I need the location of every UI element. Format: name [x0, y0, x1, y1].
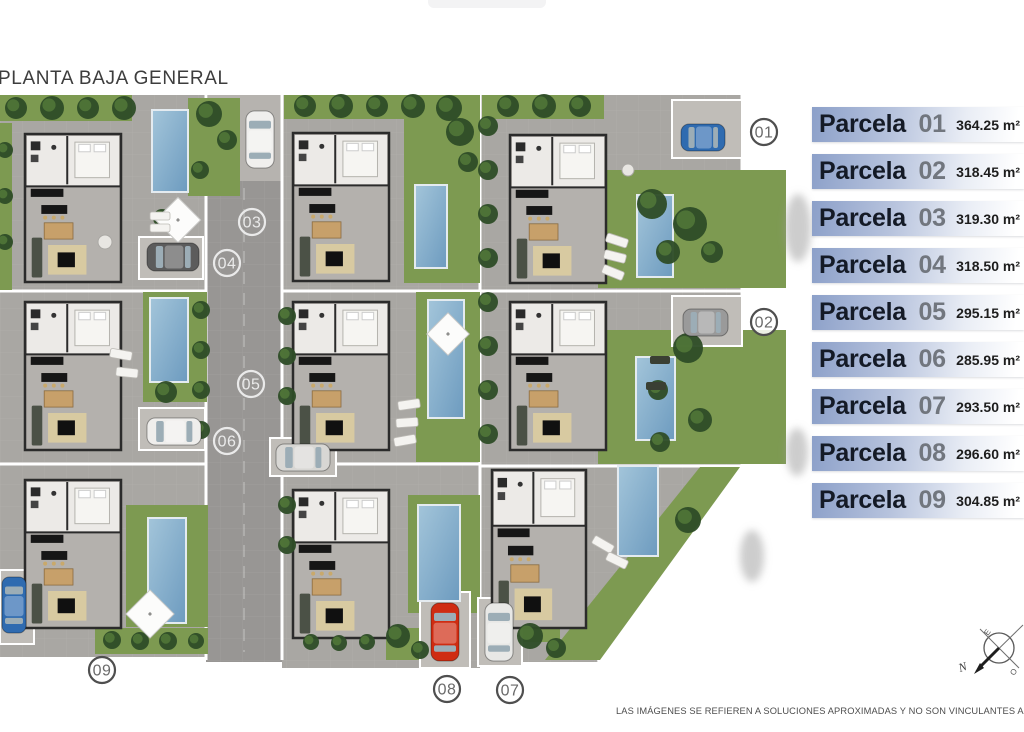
car-icon — [2, 577, 26, 633]
sofa — [32, 238, 43, 278]
sink — [536, 313, 541, 318]
parcel-number: 05 — [919, 298, 946, 326]
tree-highlight — [79, 99, 91, 111]
tree-icon — [278, 307, 296, 325]
tree-icon — [155, 381, 177, 403]
site-plan-page: 010203040506070809NEO PLANTA BAJA GENERA… — [0, 0, 1024, 732]
tree-icon — [673, 333, 703, 363]
plot-marker-label: 03 — [243, 215, 262, 232]
tree-highlight — [388, 626, 401, 639]
plot-marker-label: 02 — [755, 315, 774, 332]
car-roof — [165, 421, 184, 443]
pillow — [579, 312, 591, 319]
parcel-label: Parcela 09 — [819, 486, 946, 515]
tree-highlight — [520, 626, 534, 640]
plot-marker-02: 02 — [751, 309, 777, 335]
car-icon — [485, 603, 513, 661]
house-plan — [293, 490, 389, 638]
tree-icon — [411, 641, 429, 659]
sink — [319, 501, 324, 506]
plot-marker-01: 01 — [751, 119, 777, 145]
pillow — [79, 312, 91, 319]
stool — [60, 562, 64, 566]
tree-icon — [517, 623, 543, 649]
pillow — [79, 144, 91, 151]
tree-highlight — [676, 210, 695, 229]
coffee-table — [326, 608, 343, 623]
bath-fixture — [299, 511, 307, 518]
parcel-area: 295.15 m² — [956, 305, 1020, 321]
car-icon — [431, 603, 459, 661]
plot-marker-07: 07 — [497, 677, 523, 703]
pillow — [362, 143, 374, 150]
swimming-pool — [415, 185, 447, 268]
stool — [60, 384, 64, 388]
outdoor-table — [622, 164, 634, 176]
sink — [319, 144, 324, 149]
car-windshield — [691, 312, 697, 333]
tree-highlight — [194, 383, 204, 393]
car-roof — [165, 246, 184, 269]
plot-marker-label: 04 — [218, 256, 237, 273]
pillow — [564, 145, 576, 152]
parcel-row-04: Parcela 04318.50 m² — [812, 248, 1024, 283]
tree-shadow — [786, 428, 808, 476]
car-roof — [249, 130, 272, 151]
parcel-label: Parcela 07 — [819, 392, 946, 421]
sun-lounger — [396, 417, 419, 428]
sun-lounger — [150, 224, 170, 232]
tree-icon — [366, 95, 388, 117]
tree-highlight — [449, 121, 464, 136]
kitchen-counter — [299, 545, 332, 553]
car-windshield — [434, 613, 456, 621]
kitchen-island — [526, 206, 552, 215]
parcel-area: 318.45 m² — [956, 164, 1020, 180]
car-icon — [681, 124, 725, 151]
parcel-number: 01 — [919, 110, 946, 138]
stool — [510, 557, 514, 561]
stool — [328, 572, 332, 576]
tree-icon — [478, 380, 498, 400]
tree-icon — [278, 536, 296, 554]
stool — [518, 557, 522, 561]
stool — [537, 217, 541, 221]
tree-icon — [192, 301, 210, 319]
sink — [51, 313, 56, 318]
kitchen-counter — [498, 528, 530, 537]
tree-highlight — [413, 643, 423, 653]
tree-highlight — [652, 434, 663, 445]
tree-icon — [112, 96, 136, 120]
bath-fixture — [498, 492, 506, 500]
car-rear-window — [249, 153, 271, 159]
house-plan — [25, 134, 121, 282]
dining-table — [44, 391, 73, 407]
tree-highlight — [280, 389, 290, 399]
tree-icon — [546, 638, 566, 658]
stool — [528, 217, 532, 221]
house-plan — [25, 302, 121, 450]
bath-fixture — [31, 141, 41, 150]
sun-lounger — [150, 212, 170, 220]
car-roof — [488, 623, 511, 644]
sofa — [300, 406, 311, 446]
plot-marker-label: 09 — [93, 663, 112, 680]
bath-fixture — [516, 156, 524, 163]
car-icon — [246, 111, 274, 168]
tree-highlight — [105, 633, 115, 643]
sink — [319, 313, 324, 318]
coffee-table — [524, 596, 541, 612]
tree-highlight — [280, 498, 290, 508]
tree-highlight — [133, 634, 143, 644]
parcel-row-09: Parcela 09304.85 m² — [812, 483, 1024, 518]
tree-icon — [278, 496, 296, 514]
sofa — [517, 406, 528, 446]
tree-highlight — [219, 132, 230, 143]
stool — [328, 215, 332, 219]
sofa — [300, 594, 311, 634]
bath-fixture — [31, 501, 39, 508]
tree-highlight — [331, 96, 344, 109]
parcel-area: 285.95 m² — [956, 352, 1020, 368]
tree-highlight — [640, 192, 657, 209]
bath-fixture — [498, 478, 507, 487]
tree-icon — [478, 160, 498, 180]
stool — [545, 217, 549, 221]
parcel-row-06: Parcela 06285.95 m² — [812, 342, 1024, 377]
car-roof — [698, 312, 714, 334]
kitchen-island — [508, 546, 533, 555]
swimming-pool — [418, 505, 460, 601]
bath-fixture — [31, 309, 41, 318]
tree-icon — [478, 116, 498, 136]
sink — [536, 146, 541, 151]
coffee-table — [58, 252, 75, 267]
car-roof — [434, 623, 457, 644]
house-plan — [25, 480, 121, 628]
pillow — [347, 312, 359, 319]
tree-highlight — [199, 104, 213, 118]
plot-marker-09: 09 — [89, 657, 115, 683]
sofa — [517, 239, 528, 279]
bath-fixture — [516, 309, 526, 318]
kitchen-island — [41, 373, 67, 382]
tree-icon — [446, 118, 474, 146]
tree-highlight — [460, 154, 471, 165]
top-artifact — [428, 0, 546, 8]
tree-icon — [532, 94, 556, 118]
dining-table — [529, 224, 558, 240]
car-roof — [696, 127, 712, 149]
car-rear-window — [716, 312, 721, 333]
car-windshield — [156, 246, 163, 268]
parcel-row-03: Parcela 03319.30 m² — [812, 201, 1024, 236]
coffee-table — [326, 420, 343, 435]
tree-shadow — [740, 530, 764, 582]
car-rear-window — [488, 645, 510, 651]
sofa — [32, 406, 43, 446]
house-plan — [293, 133, 389, 281]
tree-highlight — [548, 640, 559, 651]
tree-highlight — [7, 99, 19, 111]
dining-table — [511, 565, 539, 582]
tree-icon — [497, 95, 519, 117]
tree-icon — [5, 97, 27, 119]
tree-icon — [196, 101, 222, 127]
parcel-row-08: Parcela 08296.60 m² — [812, 436, 1024, 471]
sink — [51, 145, 56, 150]
parcel-row-05: Parcela 05295.15 m² — [812, 295, 1024, 330]
tree-icon — [294, 95, 316, 117]
swimming-pool — [618, 466, 658, 556]
pillow — [560, 481, 571, 489]
tree-highlight — [114, 98, 127, 111]
tree-icon — [191, 161, 209, 179]
dining-table — [312, 391, 341, 407]
sink — [518, 482, 523, 487]
tree-highlight — [676, 336, 693, 353]
tree-highlight — [703, 243, 715, 255]
stool — [545, 384, 549, 388]
plot-marker-label: 07 — [501, 683, 520, 700]
swimming-pool — [152, 110, 188, 192]
tree-highlight — [333, 637, 342, 646]
kitchen-island — [309, 373, 335, 382]
tree-highlight — [193, 163, 203, 173]
bath-fixture — [299, 309, 309, 318]
tree-icon — [303, 634, 319, 650]
plot-marker-label: 01 — [755, 125, 774, 142]
kitchen-island — [309, 561, 335, 570]
parcel-number: 06 — [919, 345, 946, 373]
car-windshield — [249, 121, 271, 129]
tree-icon — [40, 96, 64, 120]
tree-highlight — [480, 426, 491, 437]
stool — [311, 215, 315, 219]
tree-icon — [278, 347, 296, 365]
parcel-label: Parcela 03 — [819, 204, 946, 233]
car-windshield — [488, 613, 510, 621]
tree-highlight — [480, 206, 491, 217]
tree-highlight — [194, 303, 204, 313]
tree-icon — [159, 632, 177, 650]
stool — [52, 384, 56, 388]
house-plan — [293, 302, 389, 450]
stool — [43, 562, 47, 566]
pillow — [347, 500, 359, 507]
bath-fixture — [299, 140, 309, 149]
tree-highlight — [190, 635, 199, 644]
tree-highlight — [296, 97, 308, 109]
tree-icon — [478, 424, 498, 444]
tree-icon — [458, 152, 478, 172]
tree-highlight — [480, 294, 491, 305]
car-windshield — [285, 447, 293, 468]
swimming-pool — [150, 298, 188, 382]
coffee-table — [543, 253, 560, 268]
tree-highlight — [480, 382, 491, 393]
pillow — [94, 490, 106, 497]
tree-highlight — [194, 343, 204, 353]
pillow — [362, 312, 374, 319]
stool — [60, 216, 64, 220]
tree-highlight — [658, 242, 671, 255]
car-roof — [294, 447, 313, 469]
tree-highlight — [161, 634, 171, 644]
tree-icon — [637, 189, 667, 219]
parcel-number: 09 — [919, 486, 946, 514]
tree-icon — [386, 624, 410, 648]
bath-fixture — [516, 142, 526, 151]
tree-icon — [192, 381, 210, 399]
garden-bench — [646, 382, 666, 390]
tree-highlight — [280, 538, 290, 548]
tree-highlight — [439, 98, 453, 112]
tree-icon — [478, 248, 498, 268]
stool — [328, 384, 332, 388]
parcel-label: Parcela 02 — [819, 157, 946, 186]
dining-table — [44, 223, 73, 239]
stool — [52, 216, 56, 220]
stool — [537, 384, 541, 388]
pillow — [94, 144, 106, 151]
tree-highlight — [480, 162, 491, 173]
car-icon — [276, 444, 330, 471]
house-plan — [510, 302, 606, 450]
coffee-table — [58, 598, 75, 613]
coffee-table — [58, 420, 75, 435]
tree-icon — [217, 130, 237, 150]
sofa — [300, 237, 311, 277]
tree-highlight — [368, 97, 380, 109]
tree-highlight — [280, 349, 290, 359]
parcel-label: Parcela 08 — [819, 439, 946, 468]
dining-table — [312, 579, 341, 595]
page-title: PLANTA BAJA GENERAL — [0, 68, 229, 90]
tree-icon — [401, 94, 425, 118]
tree-highlight — [678, 510, 692, 524]
stool — [320, 384, 324, 388]
kitchen-counter — [299, 188, 332, 196]
kitchen-counter — [31, 189, 64, 197]
tree-highlight — [480, 338, 491, 349]
tree-highlight — [280, 309, 290, 319]
car-rear-window — [5, 618, 23, 624]
parcel-area: 319.30 m² — [956, 211, 1020, 227]
tree-icon — [103, 631, 121, 649]
kitchen-island — [41, 205, 67, 214]
tree-icon — [192, 341, 210, 359]
tree-icon — [656, 240, 680, 264]
bath-fixture — [31, 487, 41, 496]
car-rear-window — [186, 421, 192, 442]
pillow — [362, 500, 374, 507]
stool — [311, 384, 315, 388]
stool — [527, 557, 531, 561]
plot-marker-label: 08 — [438, 682, 457, 699]
kitchen-island — [526, 373, 552, 382]
stool — [320, 215, 324, 219]
tree-icon — [688, 408, 712, 432]
tree-highlight — [305, 636, 314, 645]
coffee-table — [543, 420, 560, 435]
car-windshield — [156, 421, 164, 442]
pillow — [545, 481, 556, 489]
sun-lounger — [116, 367, 139, 378]
outdoor-table — [98, 235, 112, 249]
parcel-row-07: Parcela 07293.50 m² — [812, 389, 1024, 424]
bath-fixture — [31, 155, 39, 162]
coffee-table — [326, 251, 343, 266]
parcel-row-02: Parcela 02318.45 m² — [812, 154, 1024, 189]
tree-highlight — [42, 98, 55, 111]
tree-icon — [329, 94, 353, 118]
tree-highlight — [361, 636, 370, 645]
car-roof — [5, 596, 24, 616]
bath-fixture — [31, 323, 39, 330]
bath-fixture — [299, 323, 307, 330]
compass-west-label: O — [1008, 667, 1019, 677]
pillow — [579, 145, 591, 152]
car-rear-window — [713, 127, 718, 148]
parcel-label: Parcela 05 — [819, 298, 946, 327]
kitchen-counter — [516, 190, 549, 198]
plot-marker-label: 06 — [218, 434, 237, 451]
sink — [51, 491, 56, 496]
car-rear-window — [434, 645, 456, 651]
garden-bench — [650, 356, 670, 364]
kitchen-island — [309, 204, 335, 213]
car-rear-window — [185, 246, 191, 268]
tree-icon — [701, 241, 723, 263]
tree-icon — [673, 207, 707, 241]
tree-icon — [650, 432, 670, 452]
parcel-label: Parcela 01 — [819, 110, 946, 139]
tree-icon — [359, 634, 375, 650]
stool — [43, 216, 47, 220]
parcel-number: 04 — [919, 251, 946, 279]
sofa — [32, 584, 43, 624]
tree-highlight — [499, 97, 511, 109]
stool — [528, 384, 532, 388]
tree-icon — [278, 387, 296, 405]
parcel-legend: Parcela 01364.25 m²Parcela 02318.45 m²Pa… — [812, 107, 1024, 530]
parcel-area: 364.25 m² — [956, 117, 1020, 133]
kitchen-counter — [31, 357, 64, 365]
pillow — [347, 143, 359, 150]
tree-highlight — [534, 96, 547, 109]
bath-fixture — [516, 323, 524, 330]
bath-fixture — [299, 154, 307, 161]
bath-fixture — [299, 497, 309, 506]
tree-icon — [331, 635, 347, 651]
tree-icon — [478, 204, 498, 224]
parcel-number: 08 — [919, 439, 946, 467]
stool — [43, 384, 47, 388]
parcel-row-01: Parcela 01364.25 m² — [812, 107, 1024, 142]
car-windshield — [688, 127, 694, 148]
car-rear-window — [315, 447, 321, 468]
car-icon — [147, 418, 201, 445]
tree-highlight — [157, 383, 169, 395]
stool — [311, 572, 315, 576]
plot-marker-08: 08 — [434, 676, 460, 702]
stool — [320, 572, 324, 576]
kitchen-counter — [31, 535, 64, 543]
tree-icon — [675, 507, 701, 533]
